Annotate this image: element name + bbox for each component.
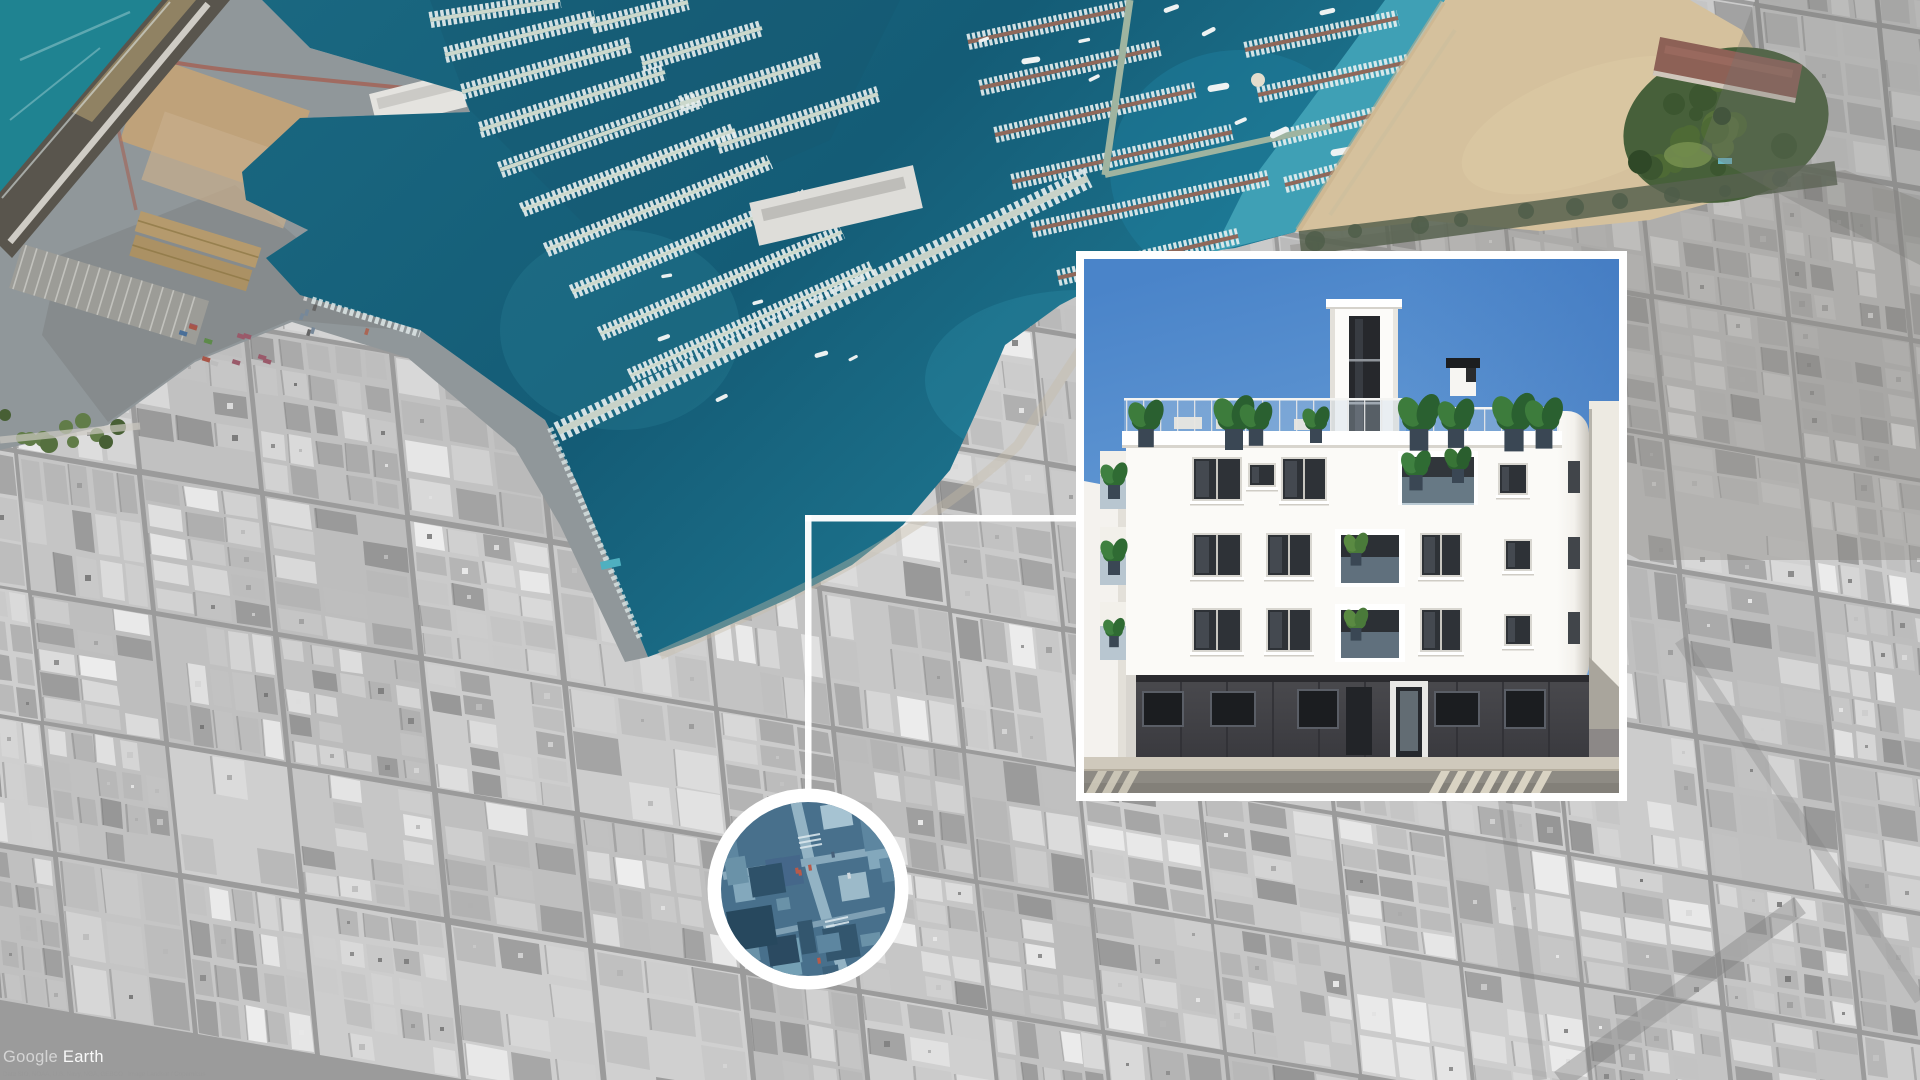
svg-text:Google Earth: Google Earth [3, 1048, 104, 1066]
svg-text:Data SIO, NOAA, U.S. Navy, NGA: Data SIO, NOAA, U.S. Navy, NGA, GEBCO Im… [3, 1071, 205, 1078]
